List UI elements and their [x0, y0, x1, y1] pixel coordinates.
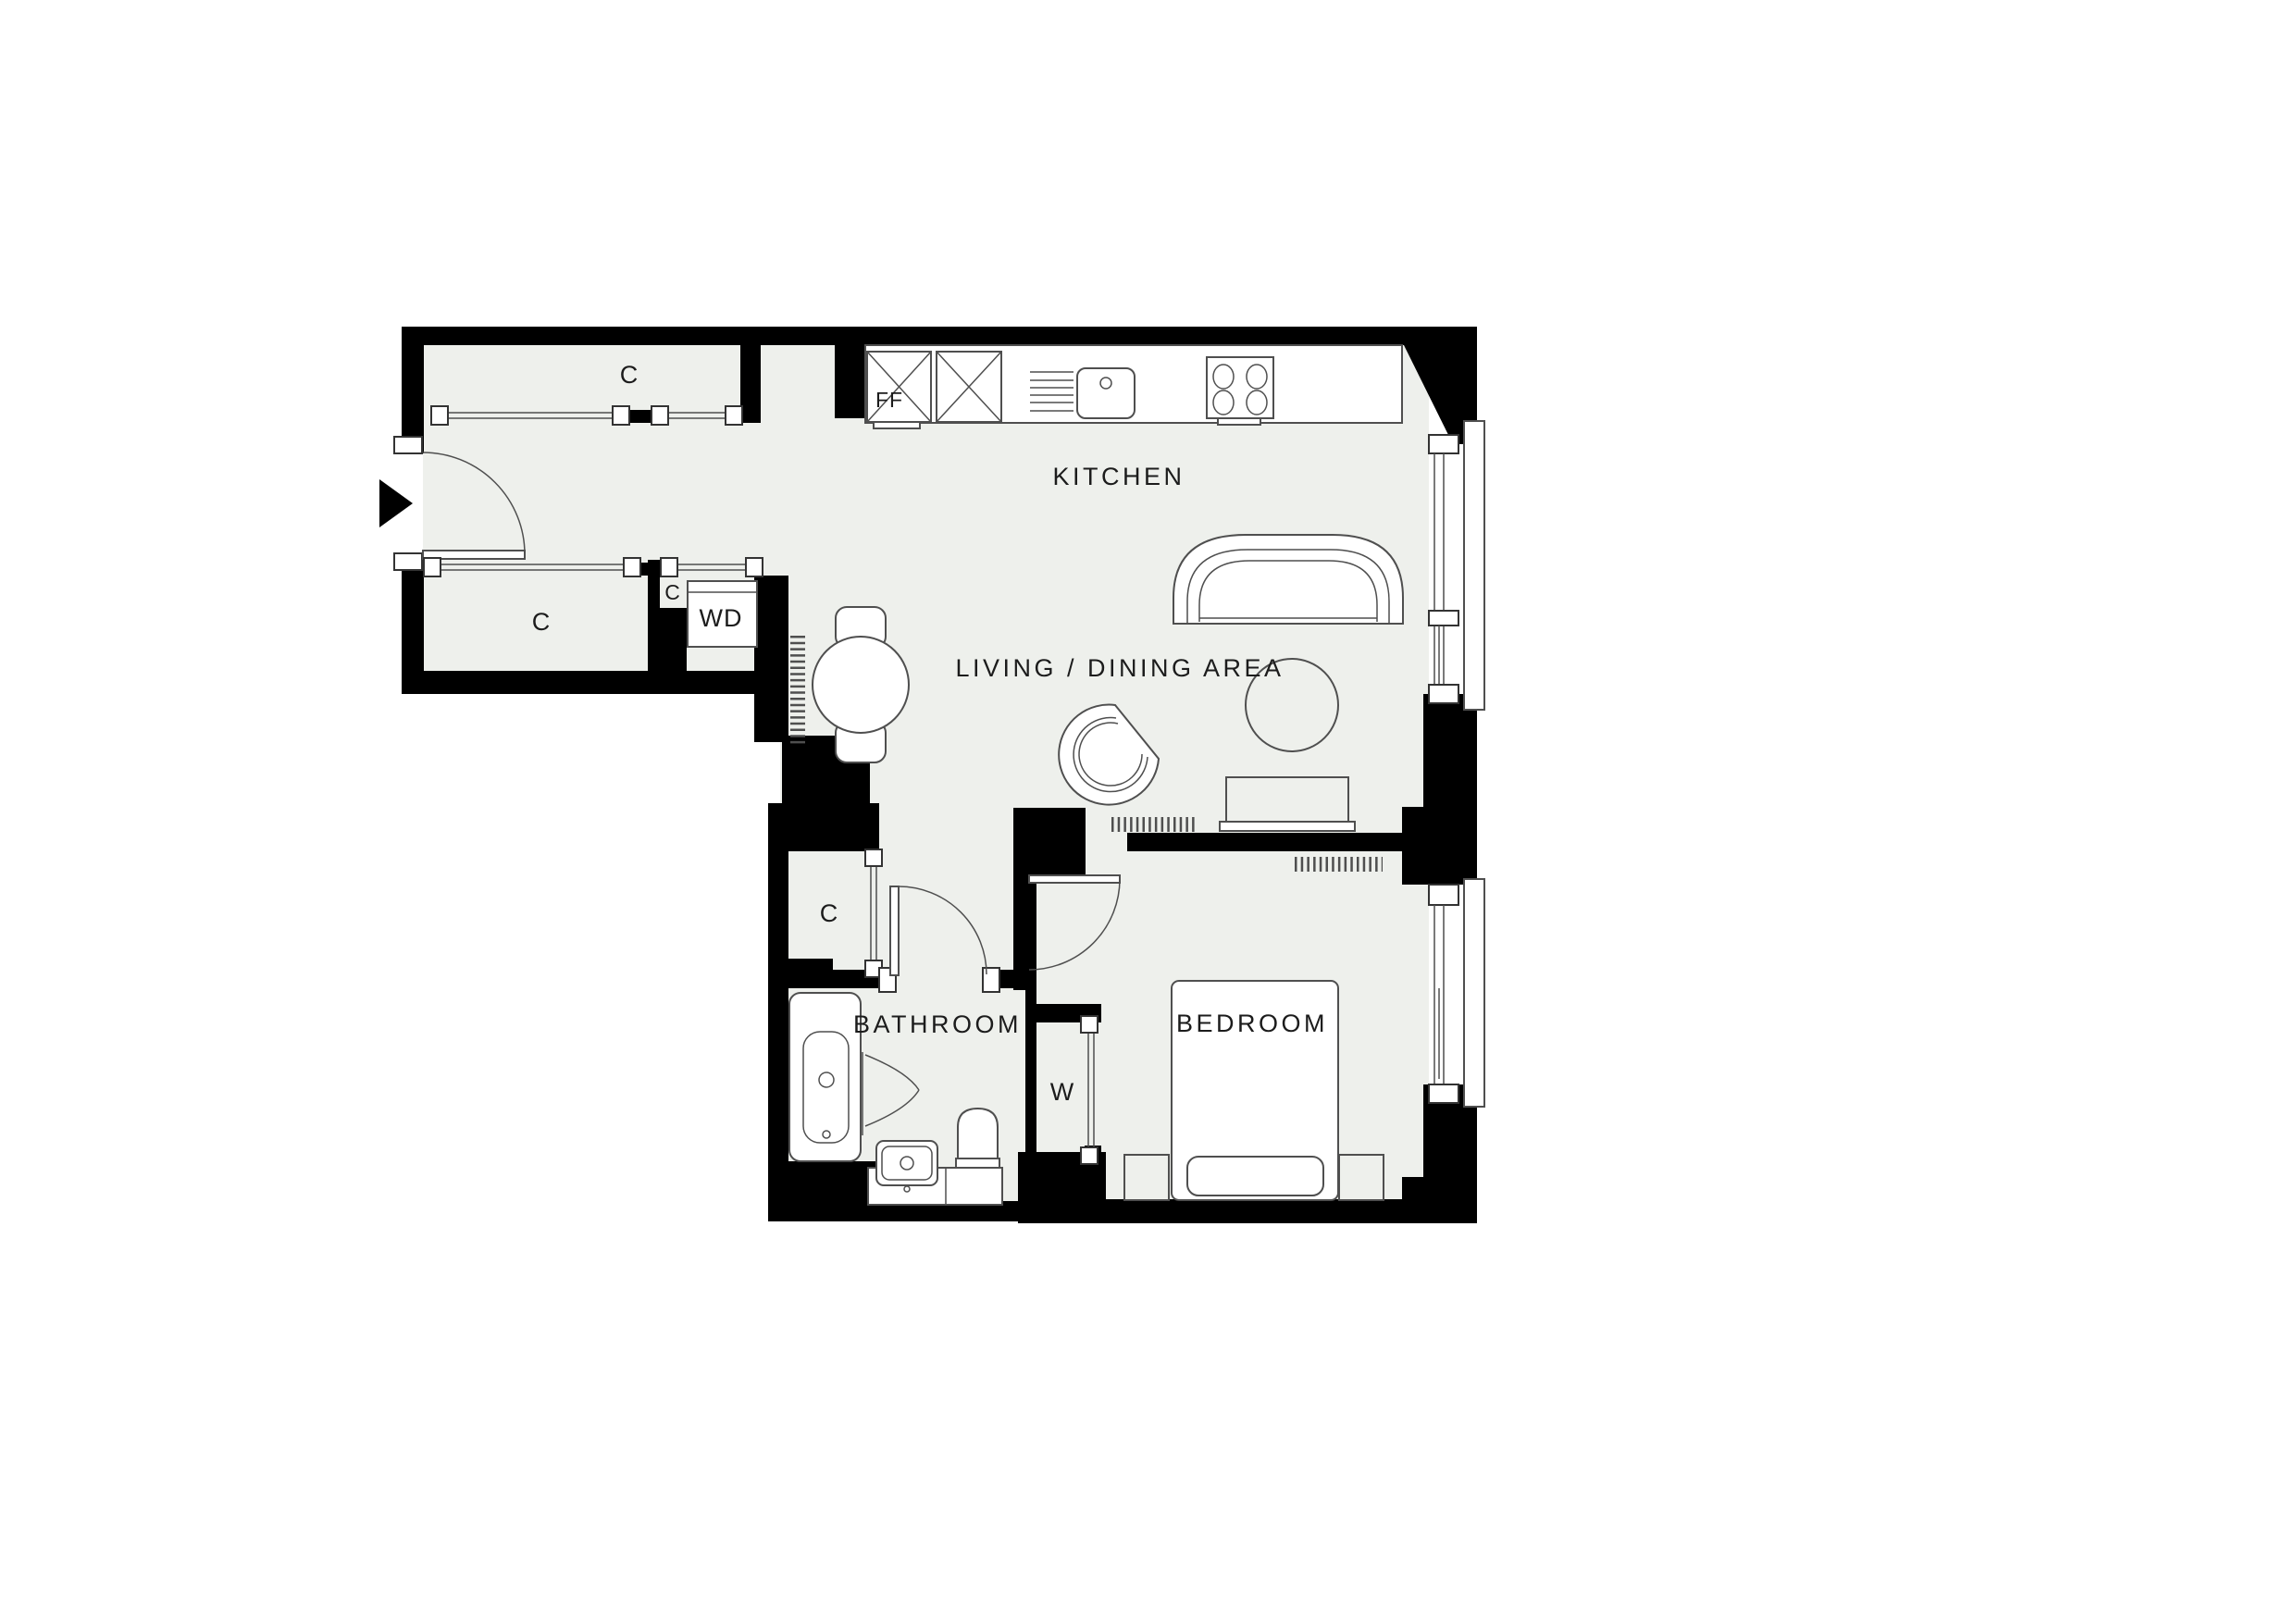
bedroom-window: [1429, 879, 1484, 1107]
curved-sofa: [1173, 535, 1403, 624]
washer-dryer-label: WD: [700, 604, 743, 632]
wall-closets-bottom: [402, 671, 788, 694]
wall-left-upper: [402, 327, 424, 453]
fridge-freezer-label: FF: [875, 388, 903, 412]
nightstand-right: [1339, 1155, 1384, 1200]
bedroom-label: BEDROOM: [1176, 1010, 1328, 1037]
bedroom-window-jamb-top: [1429, 885, 1458, 905]
living-dining-label: LIVING / DINING AREA: [955, 654, 1284, 682]
living-window-transom: [1429, 611, 1458, 626]
living-window: [1429, 421, 1484, 710]
entry-arrow-icon: [379, 479, 413, 527]
wall-between-windows: [1423, 694, 1477, 885]
dining-table: [813, 637, 909, 733]
wall-top: [402, 327, 1410, 345]
bathroom-door-leaf: [890, 886, 899, 975]
toilet: [956, 1109, 999, 1169]
kitchen-label: KITCHEN: [1052, 463, 1185, 490]
living-window-jamb-top: [1429, 435, 1458, 453]
entry-jamb-bottom: [394, 553, 422, 570]
wall-divider-left-block: [1013, 808, 1086, 876]
bedroom-window-sill: [1464, 879, 1484, 1107]
bedroom-door-leaf: [1029, 875, 1120, 883]
toilet-bowl: [958, 1109, 998, 1159]
bathtub: [789, 993, 861, 1161]
wall-living-bedroom-divider: [1127, 833, 1429, 851]
closet1-label: C: [620, 361, 639, 389]
wall-closet3-step: [660, 608, 687, 673]
closet4-label: C: [820, 899, 839, 927]
entry-hall-floor: [423, 344, 865, 574]
closet2-label: C: [532, 608, 552, 636]
living-window-sill: [1464, 421, 1484, 710]
tv-stand: [1220, 777, 1355, 831]
living-window-jamb-bottom: [1429, 685, 1458, 703]
wall-hall-kitchen: [835, 345, 865, 418]
bedroom-window-jamb-bottom: [1429, 1084, 1458, 1103]
wall-closet2-divider: [648, 560, 660, 671]
wall-wd-right: [754, 576, 788, 742]
wall-closet1-right: [740, 345, 761, 423]
nightstand-left: [1124, 1155, 1169, 1200]
wall-window-chunk: [1402, 807, 1430, 885]
kitchen-sink: [1077, 368, 1135, 418]
bathroom-label: BATHROOM: [853, 1010, 1022, 1038]
kitchen-counter: [865, 345, 1402, 428]
stove: [1207, 357, 1273, 418]
entry-jamb-top: [394, 437, 422, 453]
closet3-label: C: [664, 580, 681, 604]
floor-plan: KITCHEN LIVING / DINING AREA BEDROOM BAT…: [0, 0, 2296, 1623]
wardrobe-label: W: [1050, 1078, 1074, 1106]
bed-pillow: [1187, 1157, 1323, 1196]
